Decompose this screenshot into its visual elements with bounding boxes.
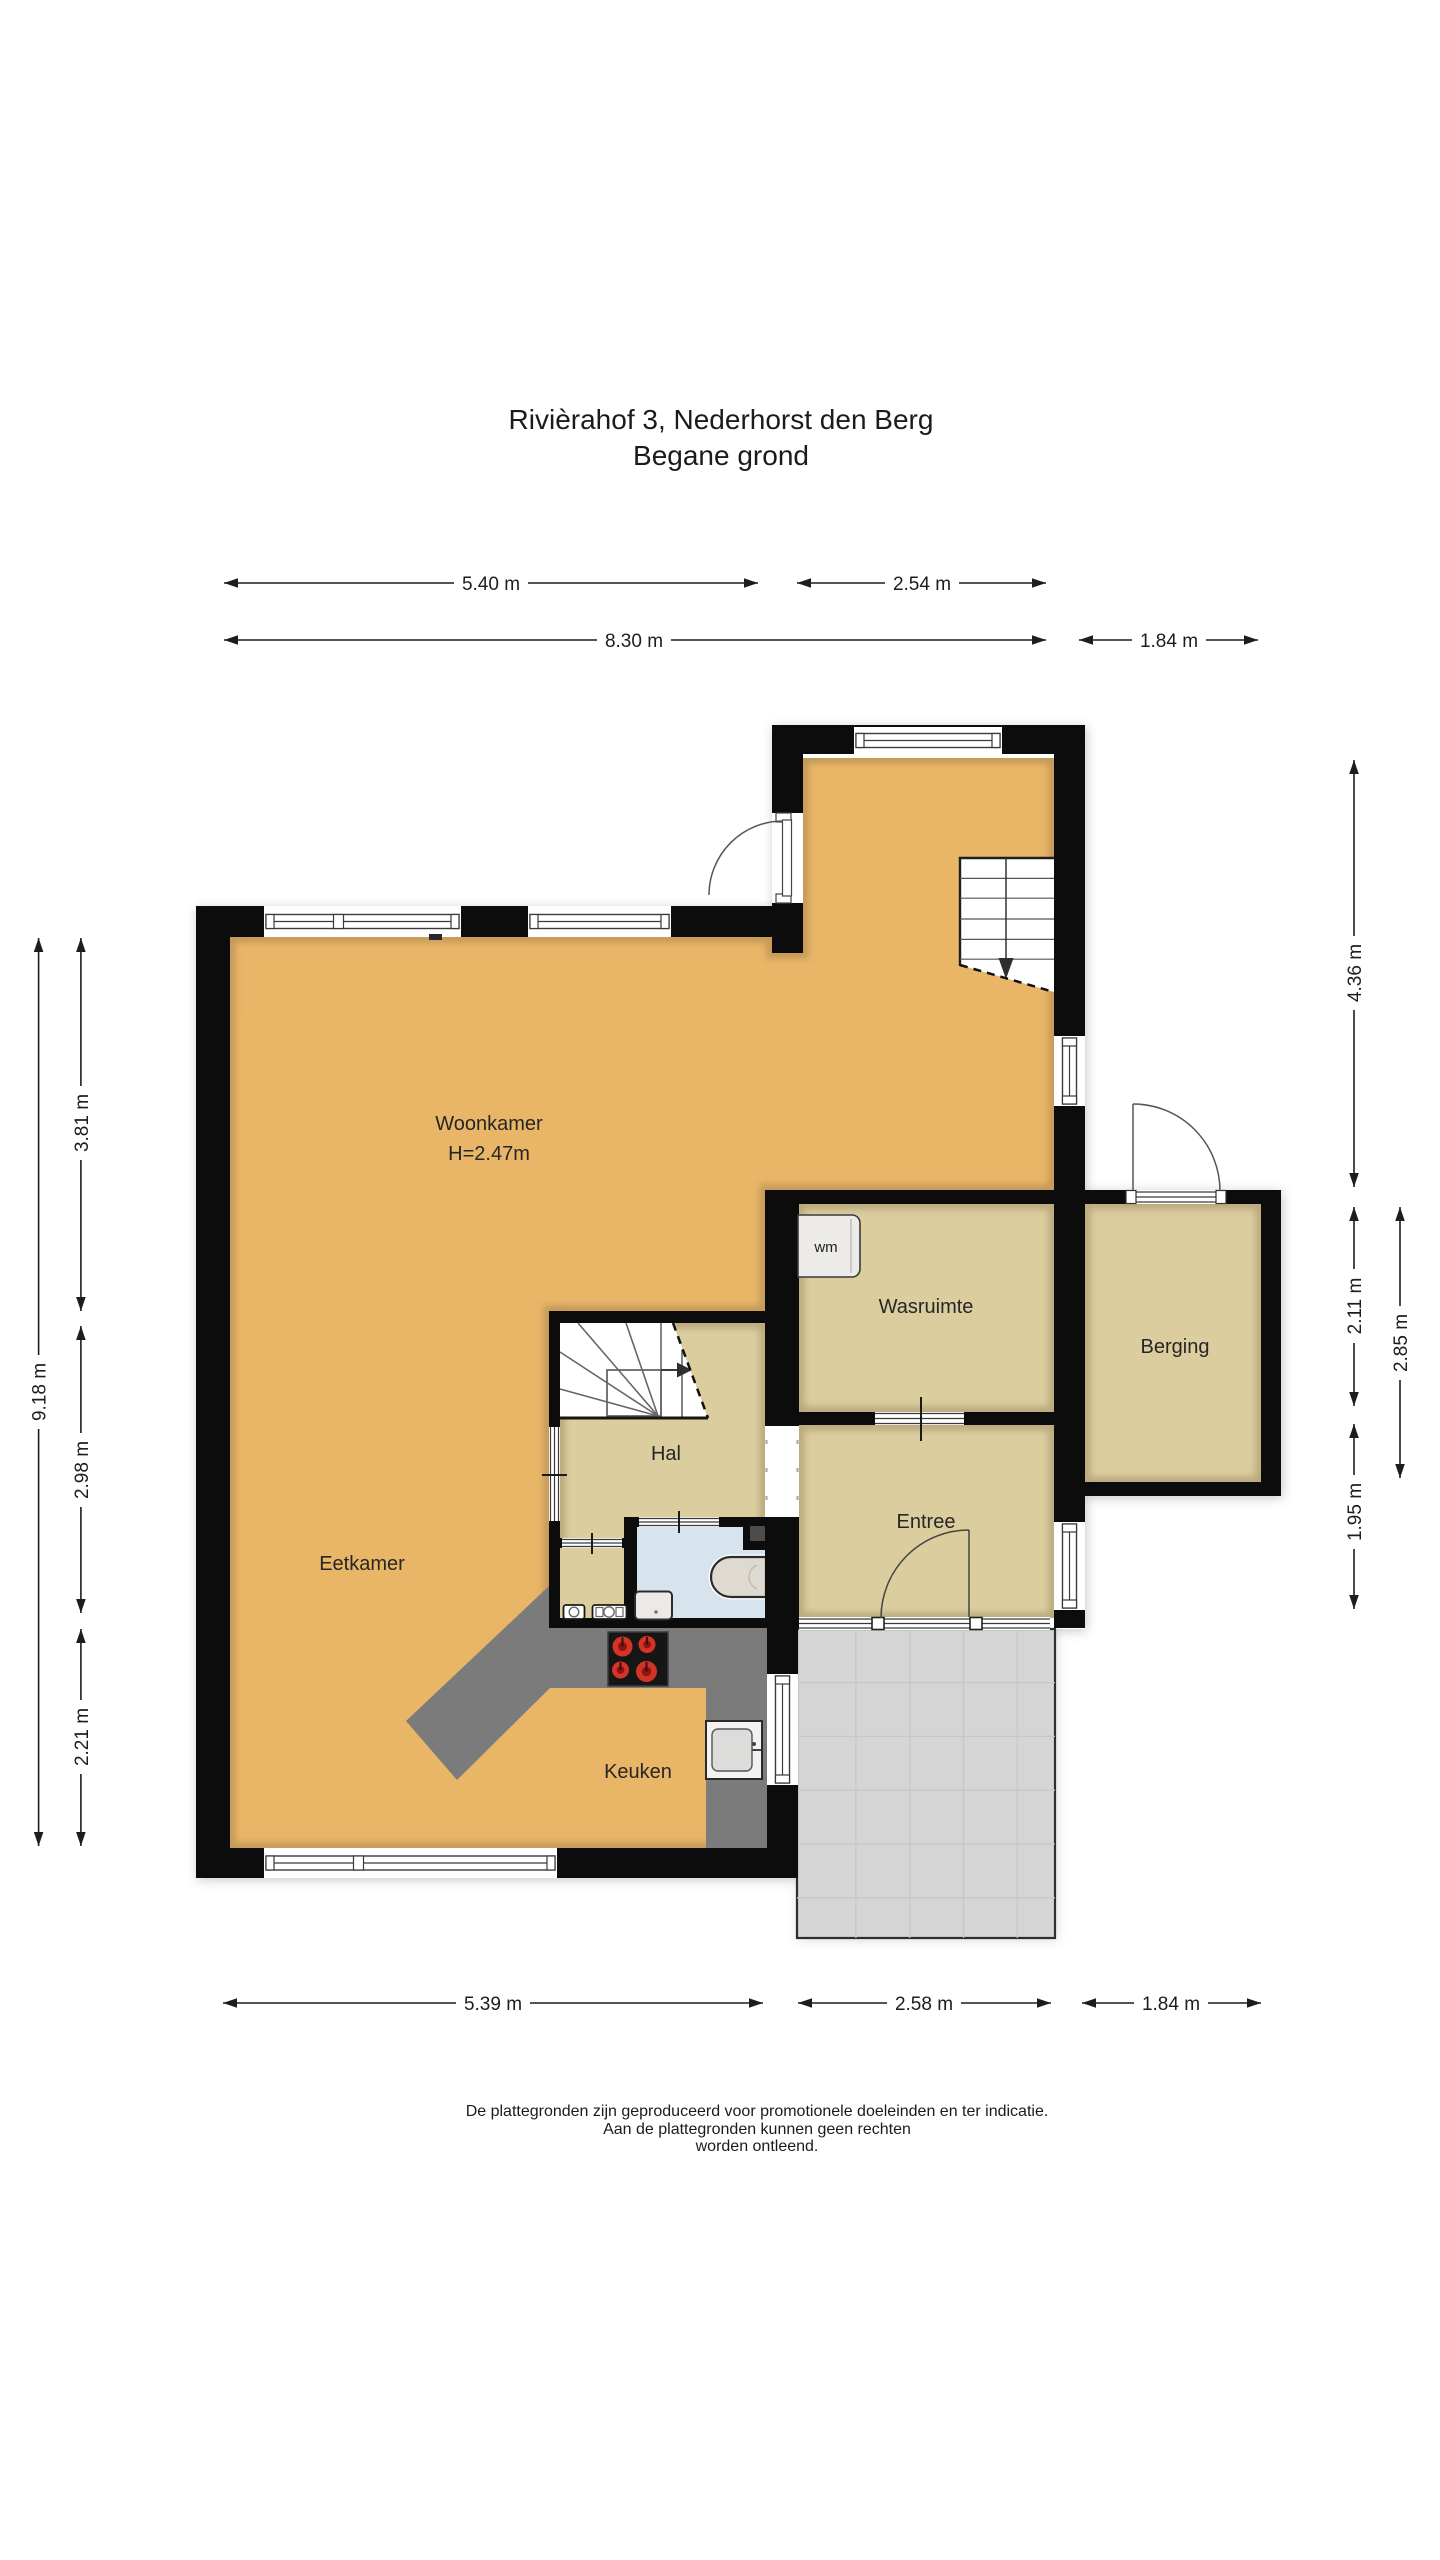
- svg-text:Begane grond: Begane grond: [633, 440, 809, 471]
- svg-text:5.39 m: 5.39 m: [464, 1994, 522, 2015]
- svg-text:Wasruimte: Wasruimte: [879, 1296, 974, 1318]
- svg-text:Eetkamer: Eetkamer: [319, 1553, 405, 1575]
- svg-text:H=2.47m: H=2.47m: [448, 1143, 530, 1165]
- svg-text:worden ontleend.: worden ontleend.: [695, 2138, 819, 2155]
- svg-text:Woonkamer: Woonkamer: [435, 1113, 543, 1135]
- svg-text:2.11 m: 2.11 m: [1345, 1278, 1366, 1335]
- svg-text:4.36 m: 4.36 m: [1345, 944, 1366, 1002]
- svg-text:Rivièrahof 3, Nederhorst den B: Rivièrahof 3, Nederhorst den Berg: [509, 404, 934, 435]
- svg-text:wm: wm: [813, 1239, 837, 1256]
- svg-text:1.95 m: 1.95 m: [1345, 1483, 1366, 1541]
- svg-text:Berging: Berging: [1141, 1336, 1210, 1358]
- svg-text:Aan de plattegronden kunnen ge: Aan de plattegronden kunnen geen rechten: [603, 2121, 911, 2138]
- svg-text:9.18 m: 9.18 m: [30, 1363, 51, 1421]
- svg-text:Hal: Hal: [651, 1443, 681, 1465]
- svg-text:2.85 m: 2.85 m: [1391, 1314, 1412, 1372]
- svg-text:Entree: Entree: [897, 1511, 956, 1533]
- svg-text:5.40 m: 5.40 m: [462, 574, 520, 595]
- svg-text:2.21 m: 2.21 m: [72, 1708, 93, 1766]
- svg-text:De plattegronden zijn geproduc: De plattegronden zijn geproduceerd voor …: [466, 2103, 1049, 2120]
- svg-text:2.98 m: 2.98 m: [72, 1441, 93, 1499]
- svg-text:1.84 m: 1.84 m: [1140, 631, 1198, 652]
- svg-text:Keuken: Keuken: [604, 1761, 672, 1783]
- svg-text:1.84 m: 1.84 m: [1142, 1994, 1200, 2015]
- svg-text:8.30 m: 8.30 m: [605, 631, 663, 652]
- svg-text:2.54 m: 2.54 m: [893, 574, 951, 595]
- svg-text:2.58 m: 2.58 m: [895, 1994, 953, 2015]
- svg-text:3.81 m: 3.81 m: [72, 1094, 93, 1152]
